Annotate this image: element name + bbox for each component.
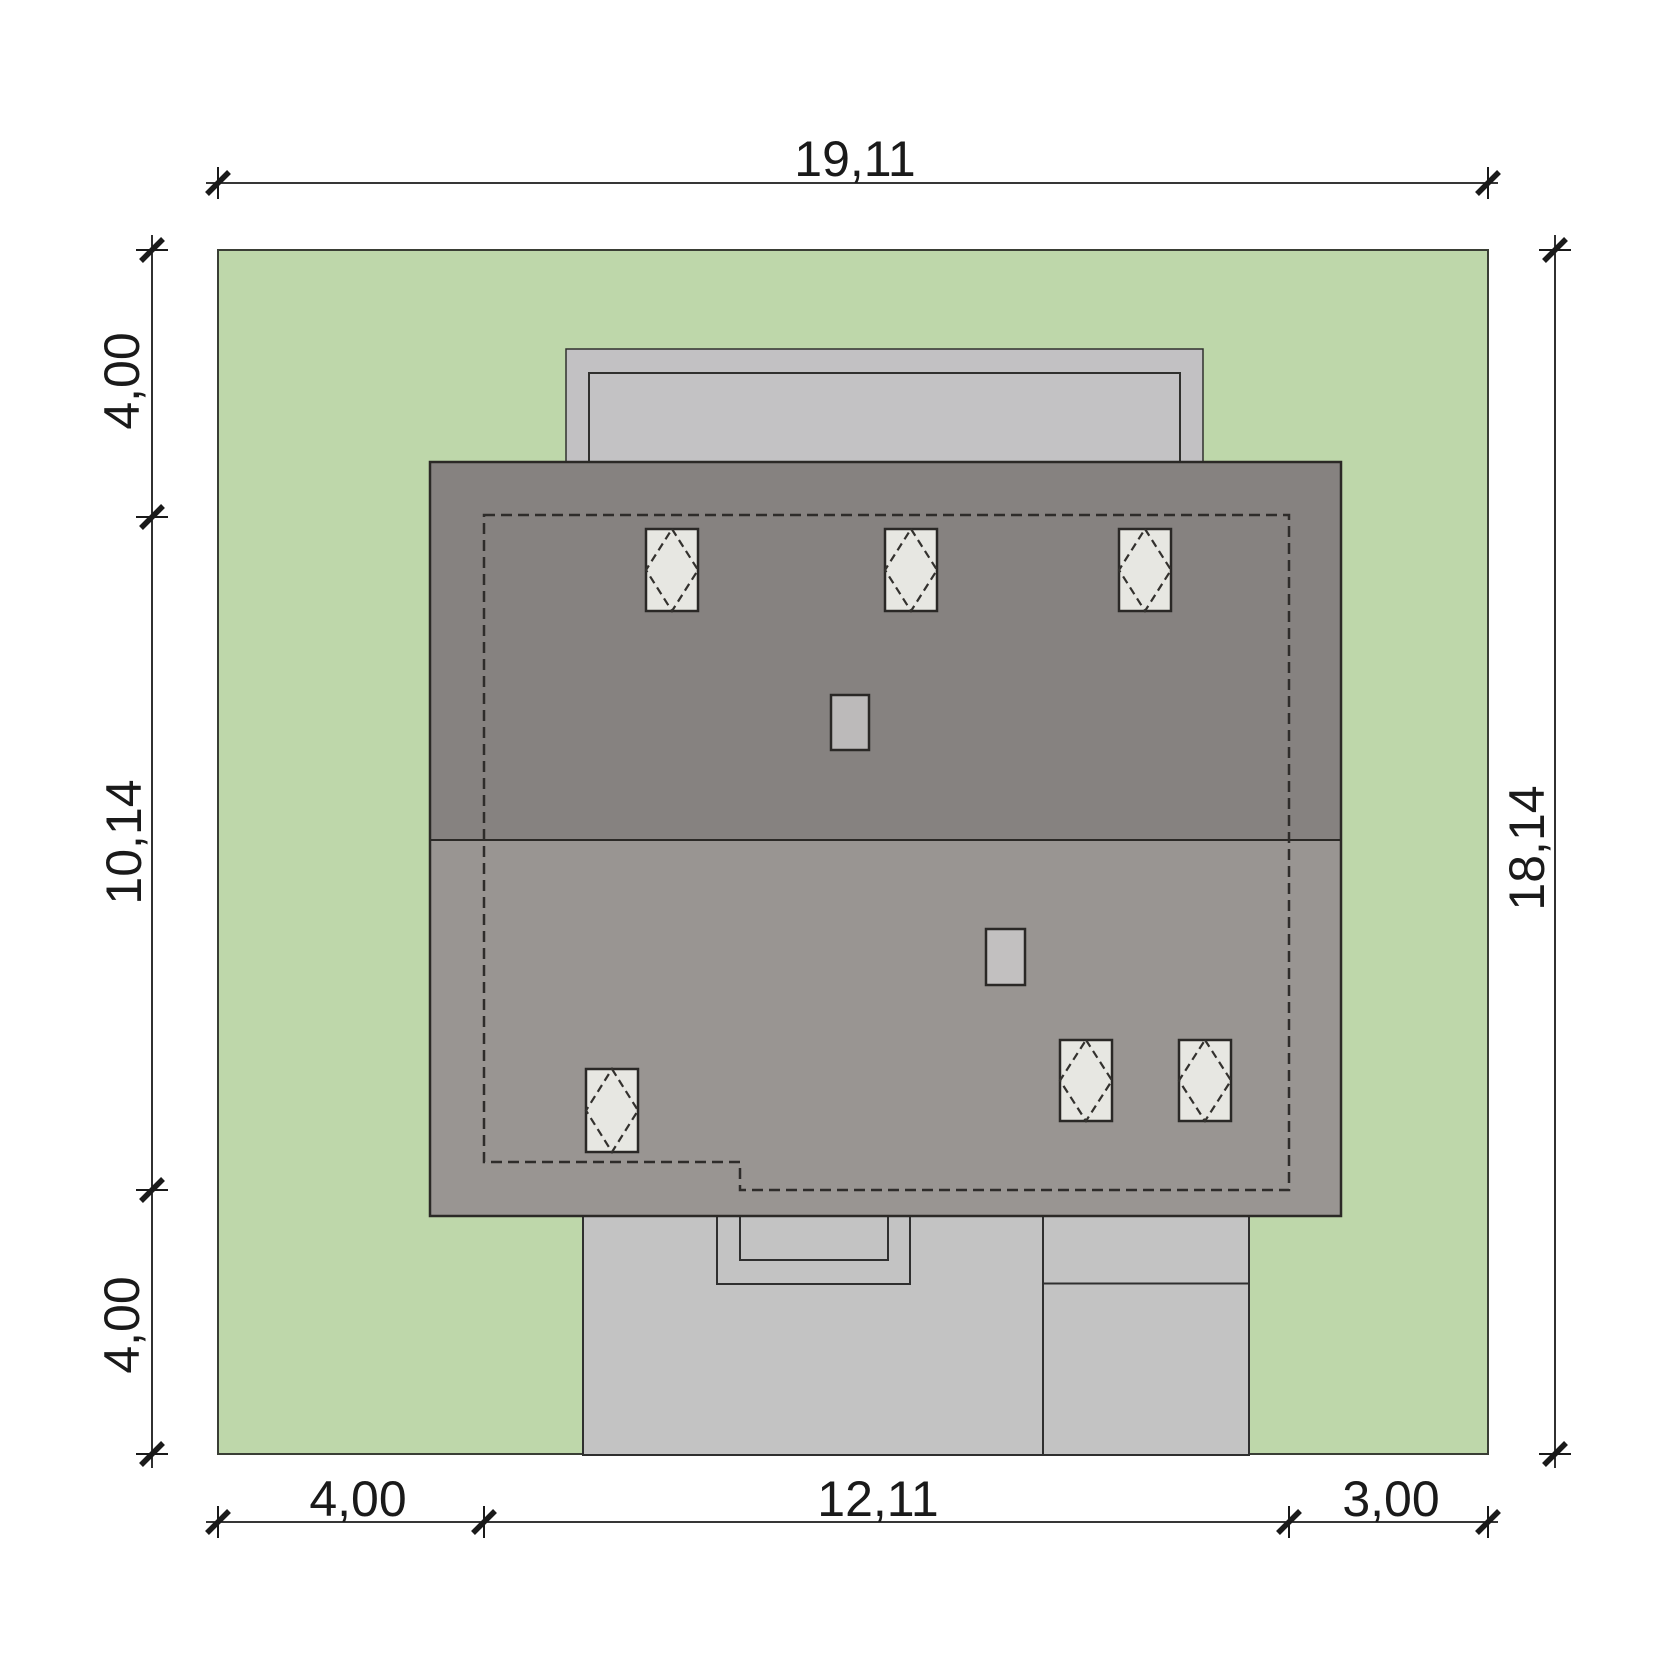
svg-text:10,14: 10,14 <box>96 779 152 904</box>
svg-text:12,11: 12,11 <box>817 1471 938 1527</box>
svg-text:4,00: 4,00 <box>94 1276 150 1373</box>
svg-text:4,00: 4,00 <box>309 1471 406 1527</box>
svg-text:19,11: 19,11 <box>794 131 915 187</box>
svg-text:3,00: 3,00 <box>1342 1471 1439 1527</box>
svg-text:4,00: 4,00 <box>94 332 150 429</box>
svg-text:18,14: 18,14 <box>1499 785 1555 910</box>
